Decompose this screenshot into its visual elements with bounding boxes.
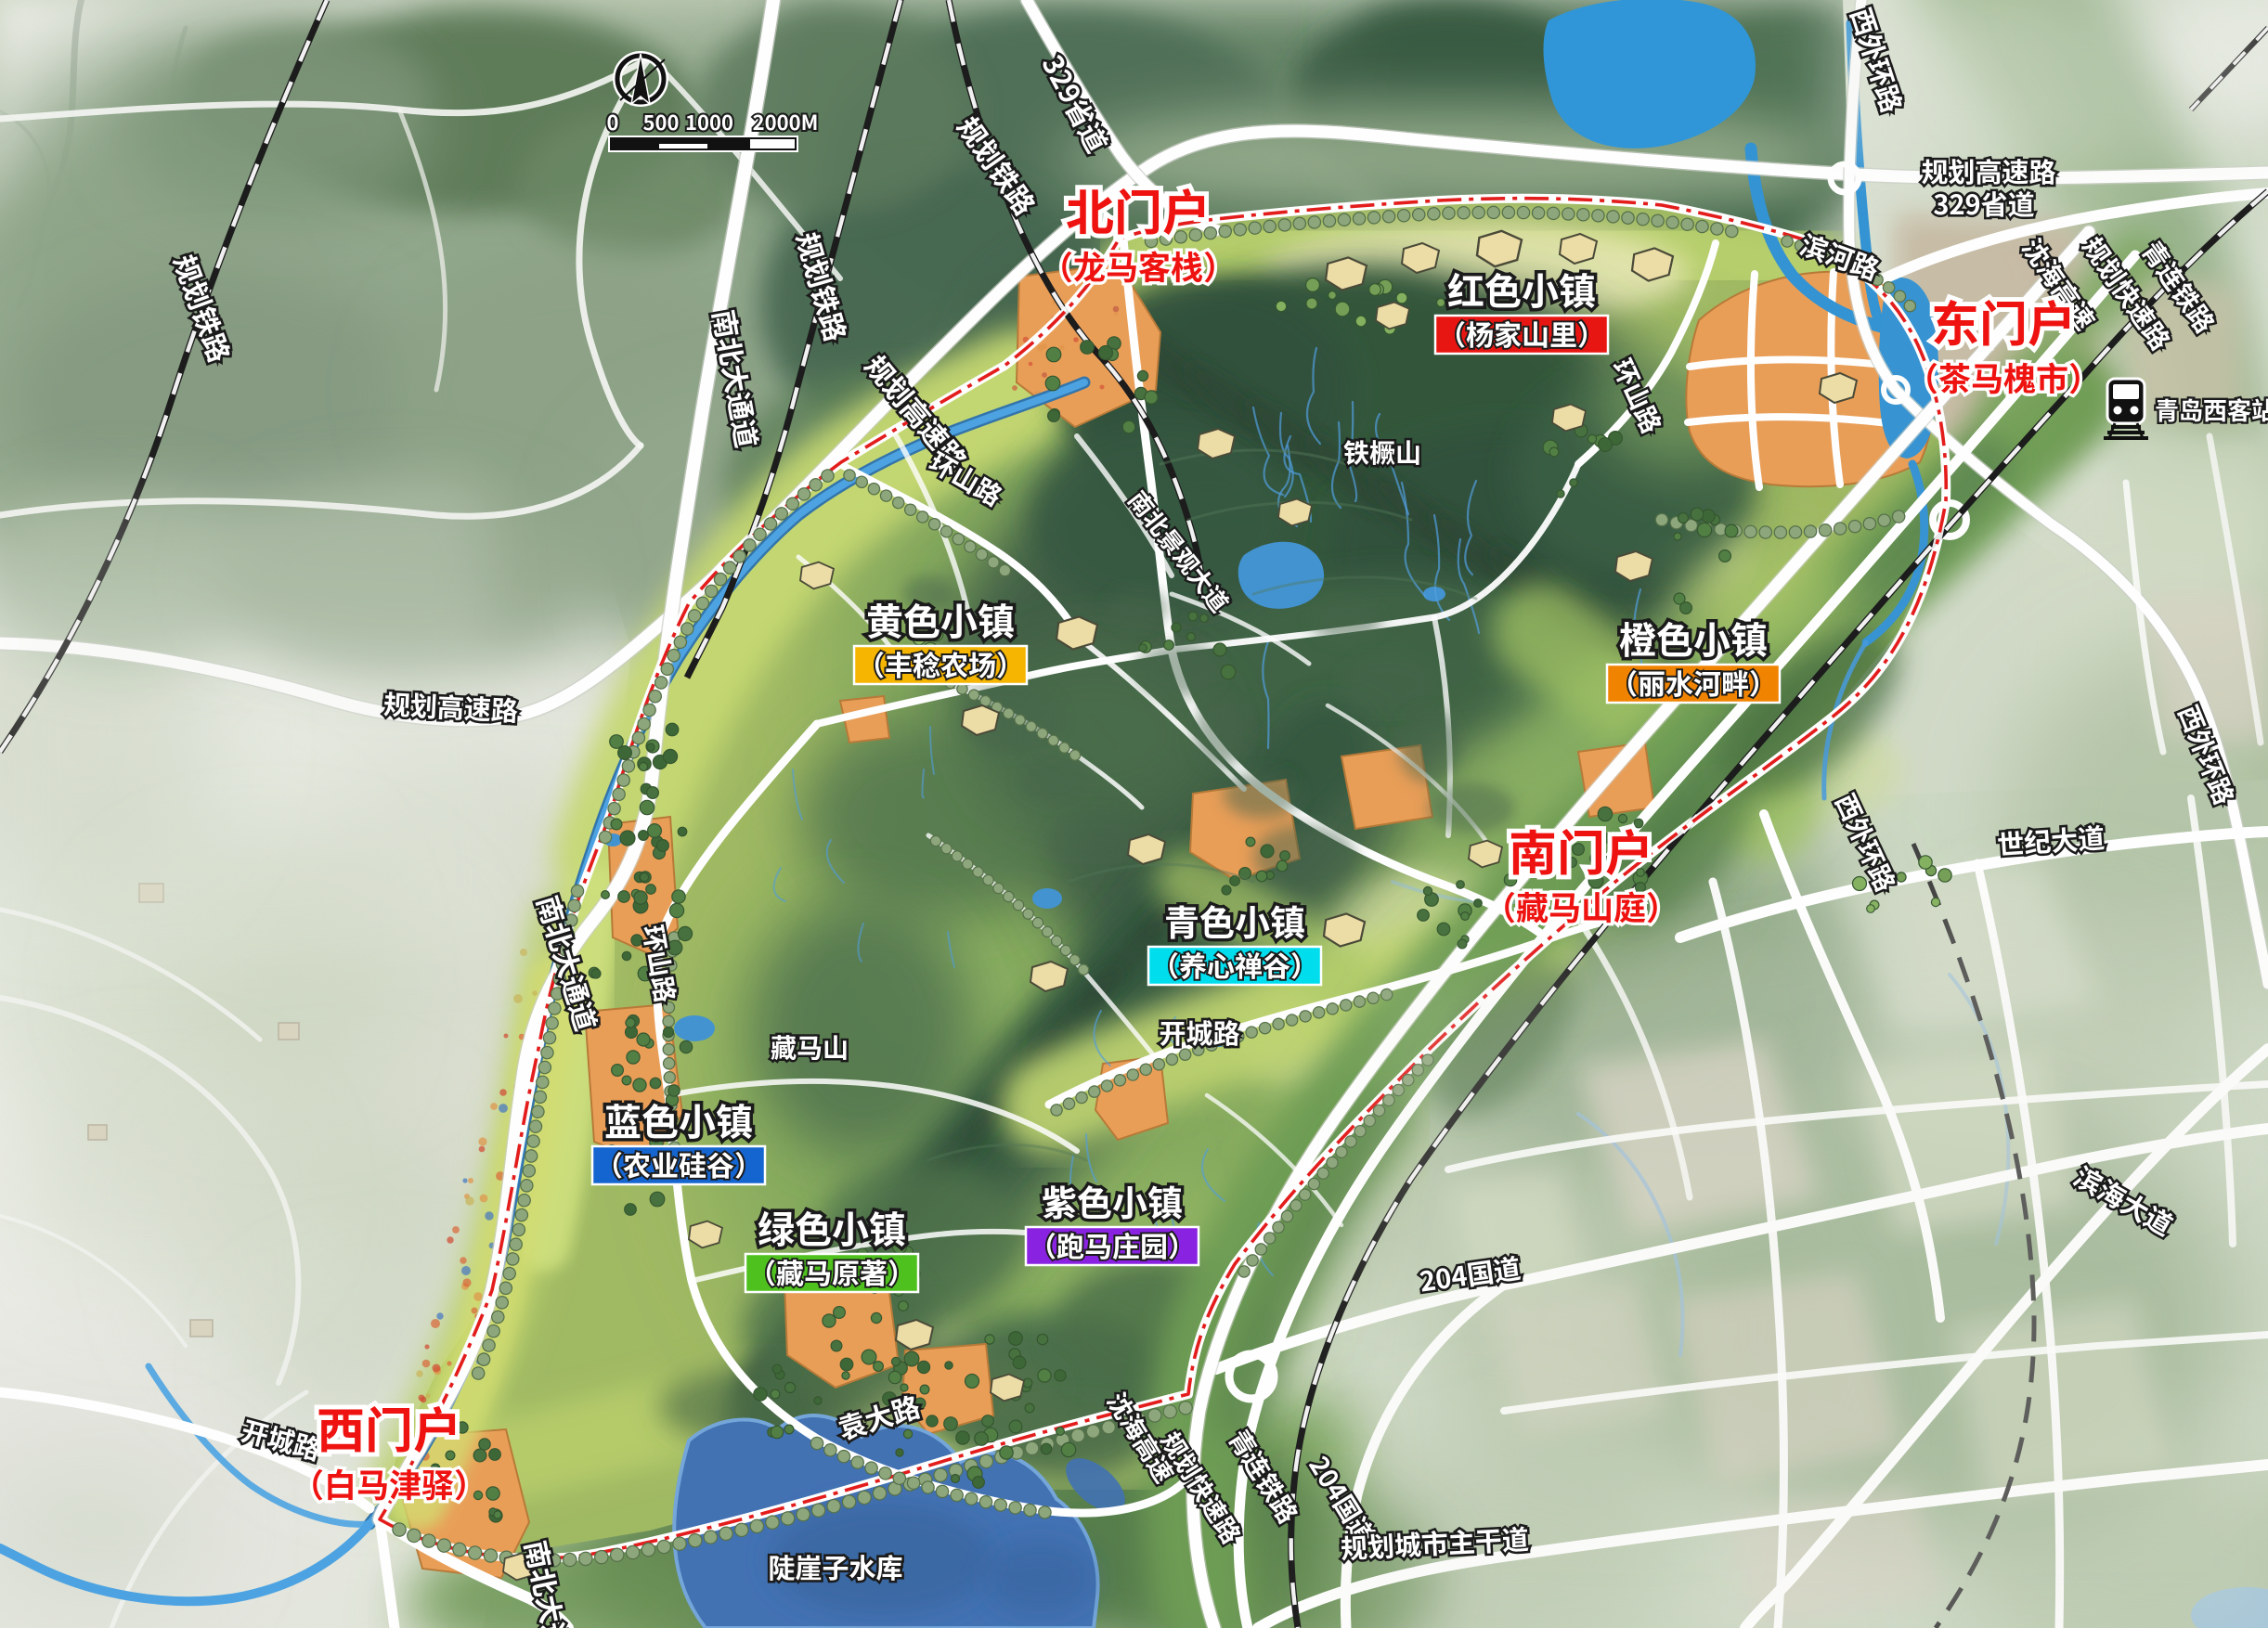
svg-text:（龙马客栈）: （龙马客栈） <box>1041 242 1236 290</box>
svg-text:2000M: 2000M <box>753 107 819 136</box>
svg-text:东门户: 东门户 <box>1931 286 2076 355</box>
svg-text:蓝色小镇: 蓝色小镇 <box>604 1092 753 1146</box>
svg-text:开城路: 开城路 <box>1159 1013 1239 1052</box>
svg-text:绿色小镇: 绿色小镇 <box>758 1200 906 1254</box>
svg-text:南门户: 南门户 <box>1509 815 1653 885</box>
svg-text:（丽水河畔）: （丽水河畔） <box>1610 662 1777 703</box>
svg-text:0: 0 <box>607 107 619 136</box>
svg-text:（跑马庄园）: （跑马庄园） <box>1029 1224 1196 1265</box>
svg-text:黄色小镇: 黄色小镇 <box>866 592 1015 646</box>
svg-text:（藏马山庭）: （藏马山庭） <box>1484 883 1678 930</box>
svg-text:500: 500 <box>643 107 680 136</box>
svg-text:青色小镇: 青色小镇 <box>1164 895 1305 946</box>
svg-text:（杨家山里）: （杨家山里） <box>1438 313 1605 354</box>
svg-text:世纪大道: 世纪大道 <box>1996 817 2106 863</box>
svg-text:陡崖子水库: 陡崖子水库 <box>768 1547 902 1586</box>
svg-text:（丰稔农场）: （丰稔农场） <box>857 643 1024 684</box>
svg-text:（农业硅谷）: （农业硅谷） <box>595 1143 762 1184</box>
svg-text:1000: 1000 <box>685 107 733 136</box>
svg-text:北门户: 北门户 <box>1066 174 1211 244</box>
svg-text:规划高速路: 规划高速路 <box>382 683 519 730</box>
svg-text:（藏马原著）: （藏马原著） <box>748 1251 915 1292</box>
svg-text:（白马津驿）: （白马津驿） <box>292 1460 486 1507</box>
svg-text:（茶马槐市）: （茶马槐市） <box>1906 354 2101 401</box>
svg-text:（养心禅谷）: （养心禅谷） <box>1151 944 1318 985</box>
svg-text:藏马山: 藏马山 <box>771 1028 849 1066</box>
svg-text:红色小镇: 红色小镇 <box>1447 262 1596 316</box>
svg-text:紫色小镇: 紫色小镇 <box>1042 1175 1183 1226</box>
svg-text:青岛西客站: 青岛西客站 <box>2155 393 2268 427</box>
svg-text:铁橛山: 铁橛山 <box>1343 433 1421 471</box>
svg-text:橙色小镇: 橙色小镇 <box>1619 611 1768 665</box>
svg-text:329省道: 329省道 <box>1933 184 2034 223</box>
svg-text:西门户: 西门户 <box>317 1392 461 1462</box>
